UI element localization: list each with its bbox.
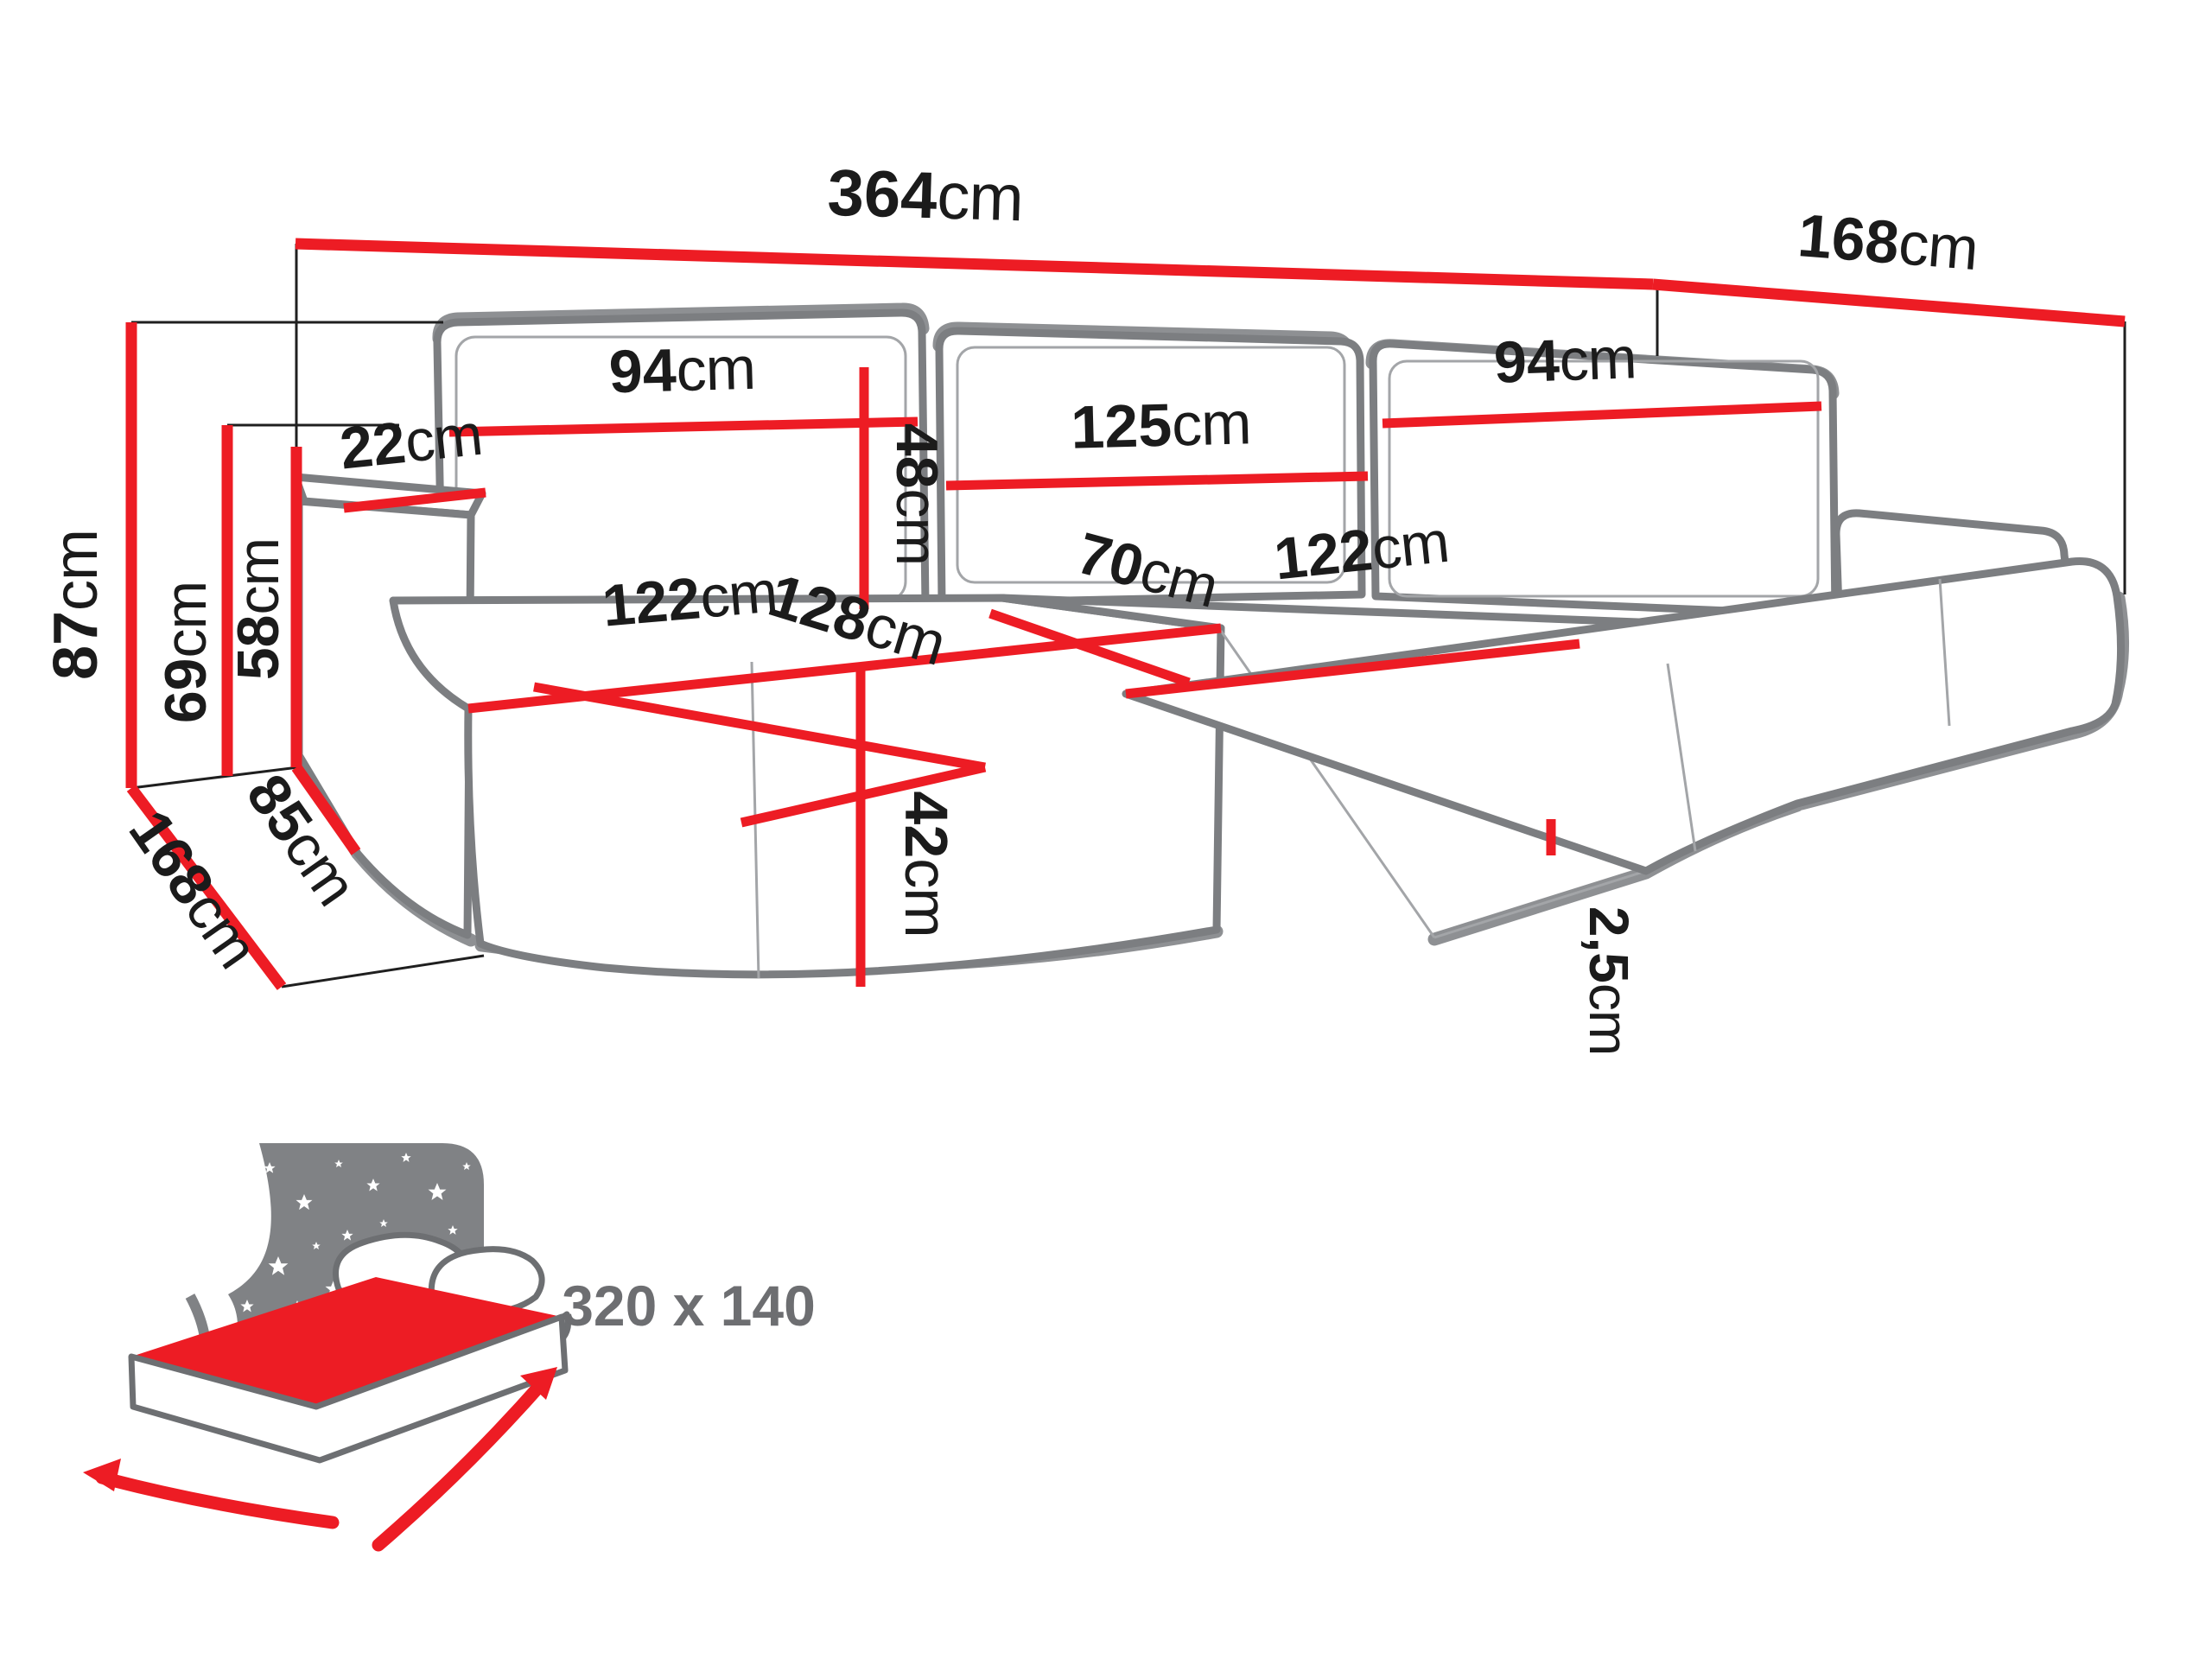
sleeping-area-label: 320 x 140 xyxy=(562,1274,816,1338)
star-icon xyxy=(251,1232,260,1242)
dim-label-backrest-height: 69cm xyxy=(153,582,219,723)
diagram-page: 364cm 168cm 87cm 69cm 58cm 22cm 94cm 48c… xyxy=(0,0,2212,1659)
sleeping-area-icon xyxy=(83,1143,569,1545)
helper-base-bottom xyxy=(282,956,484,987)
dim-line-total-depth-right xyxy=(1653,284,2125,321)
dim-label-total-height: 87cm xyxy=(41,530,111,680)
dim-label-back-cushion-left: 94cm xyxy=(608,334,756,405)
dim-label-total-depth-right: 168cm xyxy=(1796,201,1980,283)
sofa-dimension-diagram: 364cm 168cm 87cm 69cm 58cm 22cm 94cm 48c… xyxy=(0,0,2212,1659)
bed-arrow-width xyxy=(102,1478,333,1522)
dim-label-back-cushion-middle: 125cm xyxy=(1070,389,1251,461)
dim-label-gap: 2,5cm xyxy=(1578,906,1640,1055)
dim-label-back-cushion-right: 94cm xyxy=(1493,325,1637,396)
dim-line-total-width xyxy=(296,244,1653,284)
dim-label-total-depth-left: 168cm xyxy=(117,798,270,979)
dim-label-total-width: 364cm xyxy=(826,156,1024,236)
dim-label-back-cushion-height: 48cm xyxy=(884,423,950,565)
dim-label-seat-height: 42cm xyxy=(893,791,960,937)
dim-label-armrest-height: 58cm xyxy=(226,538,291,680)
